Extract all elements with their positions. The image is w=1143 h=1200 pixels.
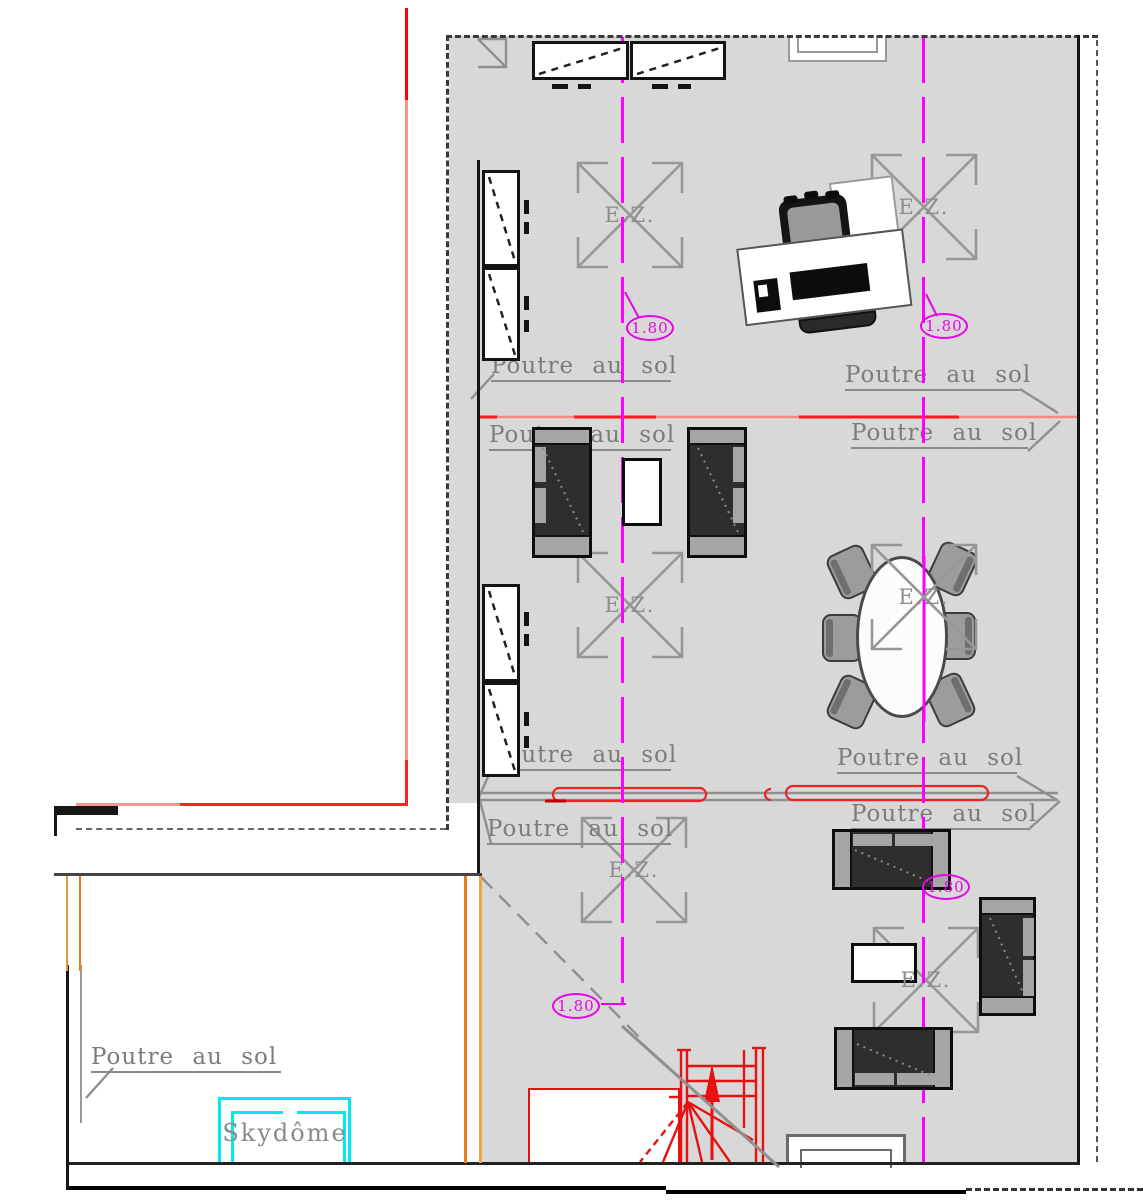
floor-plan: Poutre au solPoutre au solPoutre au solP… bbox=[0, 0, 1143, 1200]
dimension-bubble: 1.80 bbox=[922, 874, 970, 900]
ez-zone-label: E.Z. bbox=[897, 195, 951, 219]
dimension-tick bbox=[625, 292, 639, 318]
ez-zone-label: E.Z. bbox=[603, 593, 657, 617]
ez-zone-label: E.Z. bbox=[607, 858, 661, 882]
linework-over bbox=[0, 0, 1143, 1200]
stairs-arrow-head bbox=[704, 1064, 720, 1102]
stairs-fan-line bbox=[663, 1102, 688, 1162]
ez-zone-label: E.Z. bbox=[603, 203, 657, 227]
ez-zone-label: E.Z. bbox=[897, 585, 951, 609]
dimension-bubble: 1.80 bbox=[552, 993, 600, 1019]
dimension-bubble: 1.80 bbox=[920, 313, 968, 339]
ez-zone-label: E.Z. bbox=[899, 968, 953, 992]
dimension-bubble: 1.80 bbox=[626, 315, 674, 341]
